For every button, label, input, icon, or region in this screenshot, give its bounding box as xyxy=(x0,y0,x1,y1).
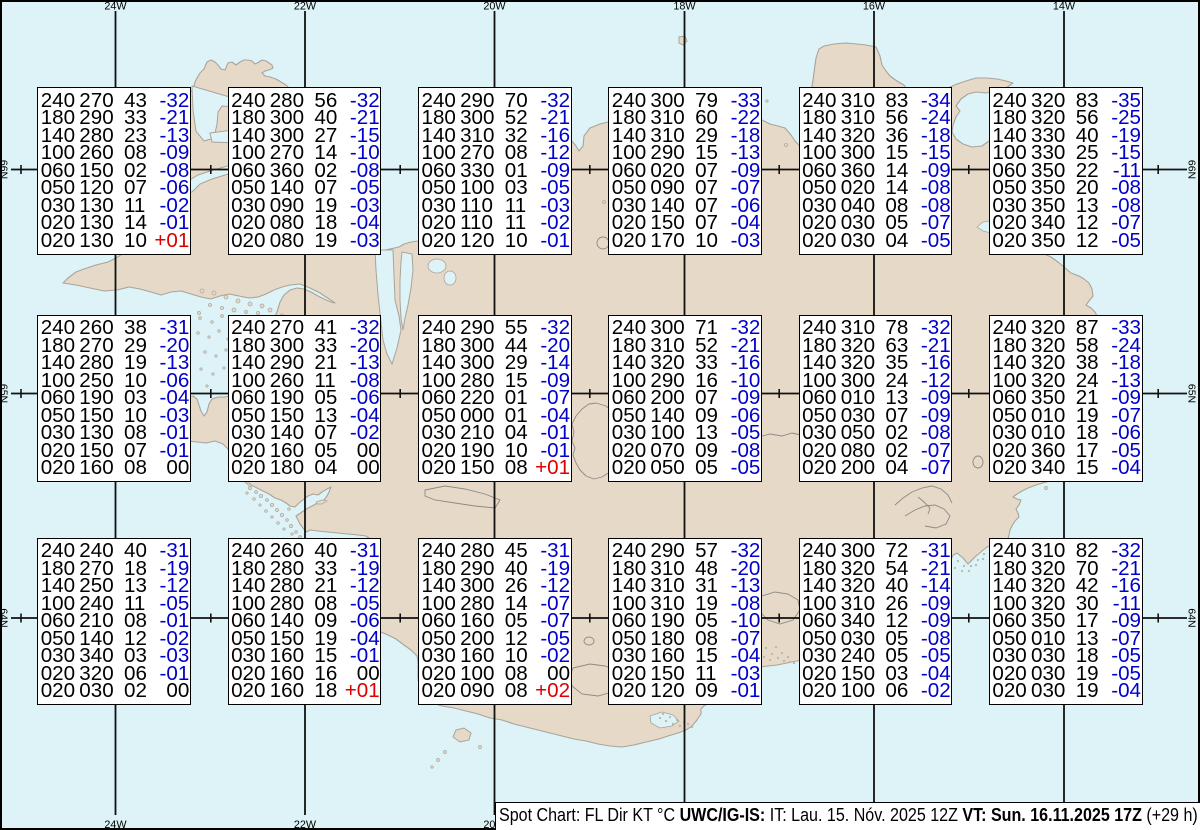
svg-text:65N: 65N xyxy=(1186,384,1198,403)
svg-text:16W: 16W xyxy=(863,1,886,13)
svg-text:20W: 20W xyxy=(483,1,506,13)
svg-text:14W: 14W xyxy=(1053,1,1076,13)
svg-text:66N: 66N xyxy=(1186,160,1198,179)
svg-text:22W: 22W xyxy=(294,1,317,13)
svg-text:24W: 24W xyxy=(104,1,127,13)
svg-text:18W: 18W xyxy=(673,1,696,13)
svg-text:64N: 64N xyxy=(1186,608,1198,627)
